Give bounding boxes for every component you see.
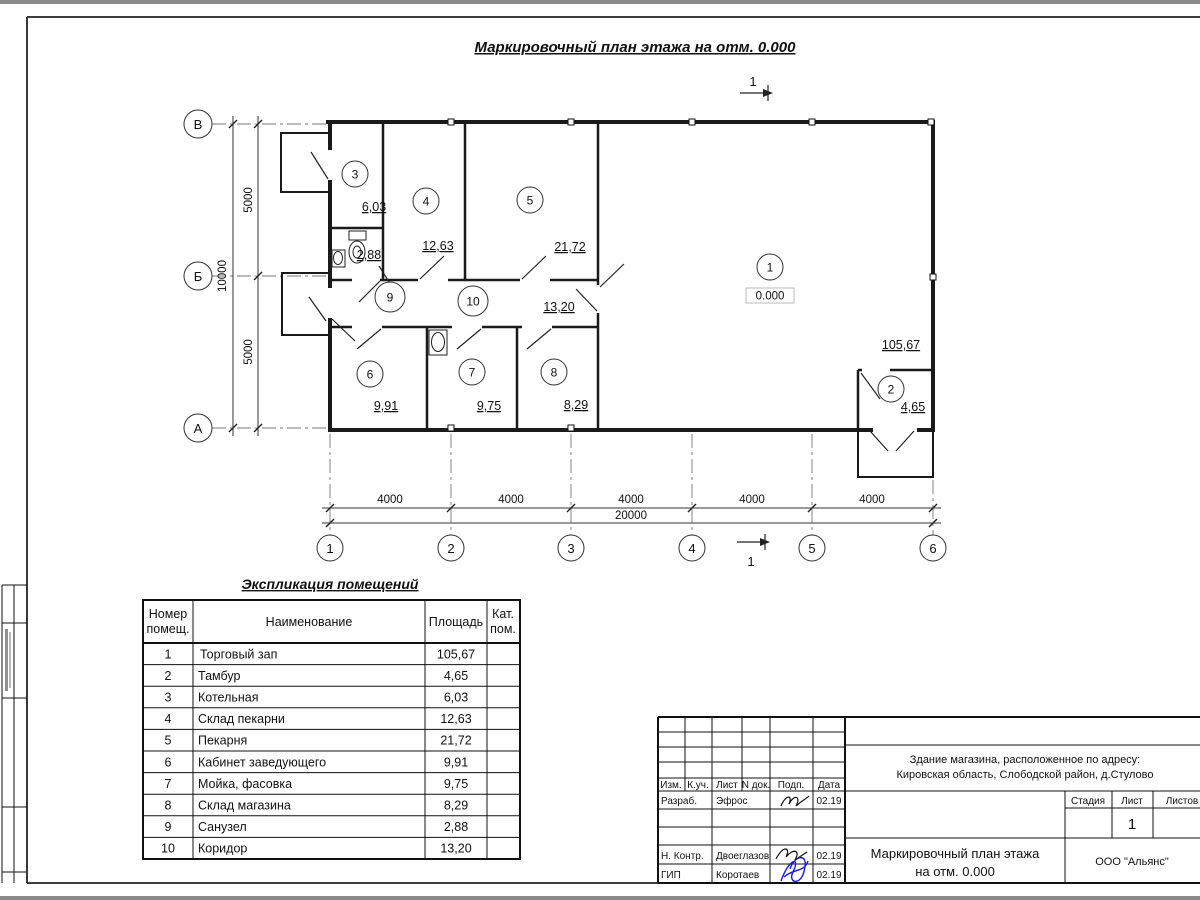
row-1-area: 105,67 [437,647,475,661]
stamp-col-izm: Изм. [660,780,681,791]
exterior-walls [326,120,935,430]
frame-side-column [2,585,27,883]
stamp-title-line1: Маркировочный план этажа [871,846,1040,861]
page-title: Маркировочный план этажа на отм. 0.000 [475,39,797,56]
row-9-name: Санузел [198,820,247,834]
row-10-name: Коридор [198,842,247,856]
room-8-area: 8,29 [564,398,588,412]
dim-4000-1: 4000 [377,494,403,506]
row-7-num: 7 [165,777,172,791]
stamp-sheets-label: Листов [1166,796,1199,807]
drawing-canvas: Маркировочный план этажа на отм. 0.000 1 [0,0,1200,900]
dim-4000-5: 4000 [859,494,885,506]
room-10-number: 10 [466,295,480,309]
room-6-number: 6 [367,368,374,382]
stamp-sheet-number: 1 [1128,816,1136,833]
row-5-name: Пекарня [198,734,247,748]
grid-circles-bottom: 1 2 3 4 5 6 [317,535,946,561]
row-2-num: 2 [165,669,172,683]
drawing-sheet: Маркировочный план этажа на отм. 0.000 1 [0,0,1200,900]
grid-4-label: 4 [688,541,695,556]
room-6-area: 9,91 [374,399,398,413]
room-4-number: 4 [423,195,430,209]
section-mark-bottom: 1 [737,534,770,569]
grid-3-label: 3 [567,541,574,556]
stamp-razrab-name: Эфрос [716,795,748,807]
row-7-name: Мойка, фасовка [198,777,292,791]
stamp-gip-label: ГИП [661,870,681,881]
row-3-num: 3 [165,691,172,705]
room-2-number: 2 [888,383,895,397]
axis-lines [212,124,933,536]
schedule-table: Номер помещ. Наименование Площадь Кат. п… [143,600,520,859]
row-8-name: Склад магазина [198,799,291,813]
row-3-area: 6,03 [444,691,468,705]
row-5-num: 5 [165,734,172,748]
grid-6-label: 6 [929,541,936,556]
elevation-value: 0.000 [756,291,785,303]
row-10-num: 10 [161,842,175,856]
grid-5-label: 5 [808,541,815,556]
row-2-area: 4,65 [444,669,468,683]
row-6-area: 9,91 [444,755,468,769]
room-2-area: 4,65 [901,400,925,414]
stamp-title-line2: на отм. 0.000 [915,864,995,879]
row-2-name: Тамбур [198,669,240,683]
stamp-stage-label: Стадия [1071,796,1105,807]
dim-20000: 20000 [615,510,647,522]
dimension-bottom: 4000 4000 4000 4000 4000 20000 [322,494,941,527]
room-3-number: 3 [352,168,359,182]
schedule-title: Экспликация помещений [242,576,419,592]
stamp-col-ndok: N док. [742,780,771,791]
stamp-gip-name: Коротаев [716,870,759,881]
room-4-area: 12,63 [422,239,453,253]
stamp-col-podp: Подп. [778,780,805,791]
stamp-nkontr-label: Н. Контр. [661,851,704,862]
schedule-col-cat-2: пом. [490,622,516,636]
row-6-num: 6 [165,755,172,769]
stamp-project-line2: Кировская область, Слободской район, д.С… [896,769,1153,781]
row-9-area: 2,88 [444,820,468,834]
row-6-name: Кабинет заведующего [198,755,326,769]
stamp-gip-date: 02.19 [816,870,841,881]
row-8-num: 8 [165,799,172,813]
room-5-area: 21,72 [554,240,585,254]
stamp-col-list: Лист [716,780,738,791]
room-7-area: 9,75 [477,399,501,413]
title-block: Изм. К.уч. Лист N док. Подп. Дата Разраб… [658,717,1200,883]
room-1-area: 105,67 [882,338,920,352]
stamp-nkontr-name: Двоеглазов [716,851,769,862]
interior-walls [330,122,933,430]
section-mark-top-label: 1 [749,74,756,89]
axis-b-label: Б [194,269,203,284]
axis-a-label: А [194,421,203,436]
row-3-name: Котельная [198,691,259,705]
row-4-num: 4 [165,712,172,726]
stamp-project-line1: Здание магазина, расположенное по адресу… [910,754,1141,766]
room-8-number: 8 [551,366,558,380]
sink-wc-icon [332,250,345,267]
row-9-num: 9 [165,820,172,834]
row-5-area: 21,72 [440,734,471,748]
schedule-col-cat-1: Кат. [492,607,514,621]
row-10-area: 13,20 [440,842,471,856]
dim-4000-2: 4000 [498,494,524,506]
section-mark-bottom-label: 1 [747,554,754,569]
room-3-area: 6,03 [362,200,386,214]
signature-razrab [781,796,809,806]
row-7-area: 9,75 [444,777,468,791]
signature-gip [781,858,808,882]
row-1-num: 1 [165,647,172,661]
room-9-area: 2,88 [357,248,381,262]
window-marks [448,119,936,431]
room-labels: 1 0.000 105,67 2 4,65 3 6,03 4 12,63 5 2… [342,161,925,414]
room-1-number: 1 [767,261,774,275]
stamp-razrab-label: Разраб. [661,795,697,807]
grid-2-label: 2 [447,541,454,556]
stamp-razrab-date: 02.19 [816,796,841,807]
stamp-sheet-label: Лист [1121,796,1143,807]
stamp-nkontr-date: 02.19 [816,851,841,862]
stamp-col-data: Дата [818,780,841,791]
dim-5000-2: 5000 [243,339,255,365]
axis-circles-left: В Б А [184,110,212,442]
schedule-col-num-1: Номер [149,607,188,621]
row-4-name: Склад пекарни [198,712,285,726]
stamp-org: ООО "Альянс" [1095,856,1169,868]
schedule-col-name: Наименование [266,615,353,629]
section-mark-top: 1 [740,74,773,101]
row-4-area: 12,63 [440,712,471,726]
schedule-col-area: Площадь [429,615,483,629]
dim-10000: 10000 [217,260,229,292]
room-5-number: 5 [527,194,534,208]
grid-1-label: 1 [326,541,333,556]
room-7-number: 7 [469,366,476,380]
dim-4000-3: 4000 [618,494,644,506]
room-10-area: 13,20 [543,300,574,314]
axis-v-label: В [194,117,203,132]
dim-5000-1: 5000 [243,187,255,213]
row-8-area: 8,29 [444,799,468,813]
stamp-col-kuch: К.уч. [687,780,709,791]
row-1-name: Торговый зап [200,647,277,661]
schedule-col-num-2: помещ. [146,622,189,636]
dim-4000-4: 4000 [739,494,765,506]
room-9-number: 9 [387,291,394,305]
sink-room7-icon [429,330,447,355]
